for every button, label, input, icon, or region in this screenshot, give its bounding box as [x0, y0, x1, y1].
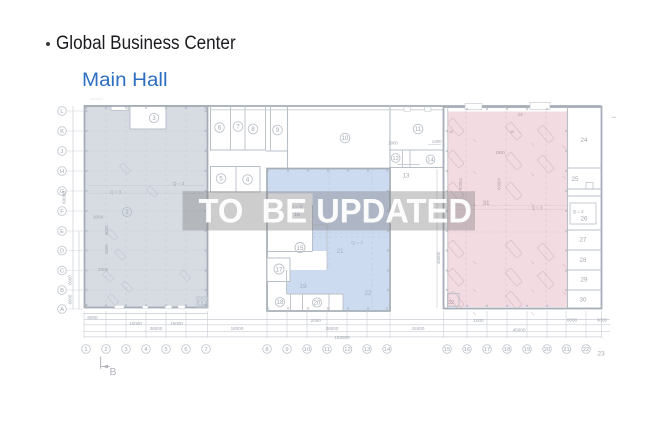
svg-text:19: 19 [524, 347, 530, 353]
svg-text:18400: 18400 [412, 326, 425, 331]
svg-text:11: 11 [415, 127, 422, 133]
svg-text:K: K [60, 129, 64, 135]
svg-text:16: 16 [464, 347, 470, 353]
svg-text:4: 4 [144, 347, 148, 353]
svg-text:2000: 2000 [98, 267, 109, 272]
svg-text:6: 6 [218, 126, 222, 132]
svg-text:21: 21 [336, 248, 344, 255]
svg-text:1000: 1000 [473, 318, 484, 323]
svg-text:6000: 6000 [104, 244, 109, 254]
svg-text:H: H [60, 169, 64, 175]
svg-text:18000: 18000 [231, 326, 244, 331]
svg-text:10: 10 [304, 347, 310, 353]
svg-text:10: 10 [342, 136, 349, 142]
svg-text:11: 11 [324, 347, 330, 353]
svg-text:19: 19 [299, 283, 307, 290]
svg-text:6: 6 [184, 347, 187, 353]
svg-text:36000: 36000 [150, 326, 163, 331]
svg-text:26: 26 [581, 216, 588, 223]
svg-text:18: 18 [277, 300, 284, 306]
svg-text:1900: 1900 [388, 141, 398, 146]
svg-text:17: 17 [484, 347, 490, 353]
svg-text:21: 21 [563, 347, 569, 353]
svg-text:15000: 15000 [129, 321, 142, 326]
svg-text:Q = 3: Q = 3 [573, 209, 584, 214]
svg-text:C: C [60, 269, 64, 275]
svg-text:6000: 6000 [87, 315, 98, 320]
svg-text:1: 1 [201, 301, 204, 307]
svg-text:20: 20 [314, 301, 321, 307]
svg-text:32: 32 [448, 300, 454, 306]
svg-text:9: 9 [276, 128, 280, 134]
svg-text:36000: 36000 [326, 326, 339, 331]
svg-text:14: 14 [427, 158, 434, 164]
svg-text:1900: 1900 [495, 150, 505, 155]
svg-text:22: 22 [364, 290, 372, 297]
svg-text:23: 23 [517, 112, 523, 117]
svg-text:60000: 60000 [62, 191, 67, 204]
svg-text:15: 15 [297, 245, 304, 252]
svg-text:22: 22 [583, 347, 589, 353]
svg-text:Q = 3: Q = 3 [532, 206, 543, 211]
svg-text:31: 31 [482, 200, 490, 207]
svg-text:153000: 153000 [334, 335, 350, 340]
svg-text:6000: 6000 [104, 225, 109, 235]
svg-text:7: 7 [204, 347, 207, 353]
svg-text:2000: 2000 [93, 215, 104, 220]
svg-text:5: 5 [164, 347, 167, 353]
svg-text:29: 29 [581, 277, 588, 284]
svg-text:Q = 3: Q = 3 [173, 181, 185, 186]
svg-text:12: 12 [344, 347, 350, 353]
svg-text:18000: 18000 [170, 321, 183, 326]
svg-text:13: 13 [364, 347, 370, 353]
svg-text:Q = 3: Q = 3 [351, 240, 363, 246]
svg-text:6000: 6000 [68, 275, 73, 285]
svg-text:15: 15 [444, 347, 450, 353]
svg-text:60004: 60004 [458, 178, 463, 190]
svg-text:2: 2 [104, 347, 107, 353]
svg-text:18: 18 [504, 347, 510, 353]
svg-text:F: F [60, 209, 64, 215]
svg-text:45: 45 [510, 130, 514, 134]
svg-text:24: 24 [581, 137, 588, 144]
svg-text:D: D [60, 249, 64, 255]
svg-text:20: 20 [544, 347, 550, 353]
svg-text:3: 3 [124, 347, 127, 353]
svg-text:27: 27 [580, 237, 587, 244]
svg-text:L: L [60, 109, 64, 115]
svg-text:3000: 3000 [597, 318, 608, 323]
svg-text:6000: 6000 [68, 294, 73, 304]
svg-text:6000: 6000 [567, 318, 578, 323]
svg-text:13: 13 [403, 174, 410, 180]
svg-text:45000: 45000 [513, 328, 526, 333]
svg-text:14: 14 [384, 347, 391, 353]
svg-text:Q = 3: Q = 3 [110, 190, 122, 195]
svg-text:30: 30 [580, 297, 587, 304]
svg-text:60004: 60004 [497, 178, 502, 190]
svg-text:7: 7 [236, 125, 240, 131]
svg-text:23: 23 [597, 351, 605, 358]
svg-text:45000: 45000 [436, 251, 441, 264]
svg-text:1300: 1300 [432, 139, 442, 144]
svg-text:J: J [61, 149, 64, 155]
svg-text:28: 28 [580, 257, 587, 264]
svg-text:8: 8 [265, 347, 268, 353]
svg-text:17: 17 [276, 266, 283, 273]
svg-text:A: A [60, 307, 64, 313]
svg-text:1: 1 [84, 347, 87, 353]
svg-text:45: 45 [449, 130, 453, 134]
svg-text:E: E [60, 229, 64, 235]
svg-text:B: B [60, 288, 64, 294]
svg-text:B: B [110, 366, 117, 378]
svg-text:9: 9 [285, 347, 288, 353]
svg-text:2000: 2000 [311, 318, 322, 323]
svg-text:12: 12 [392, 156, 398, 162]
svg-text:25: 25 [572, 176, 579, 183]
svg-text:8: 8 [251, 127, 255, 133]
svg-text:TO BE UPDATED: TO BE UPDATED [199, 193, 473, 231]
